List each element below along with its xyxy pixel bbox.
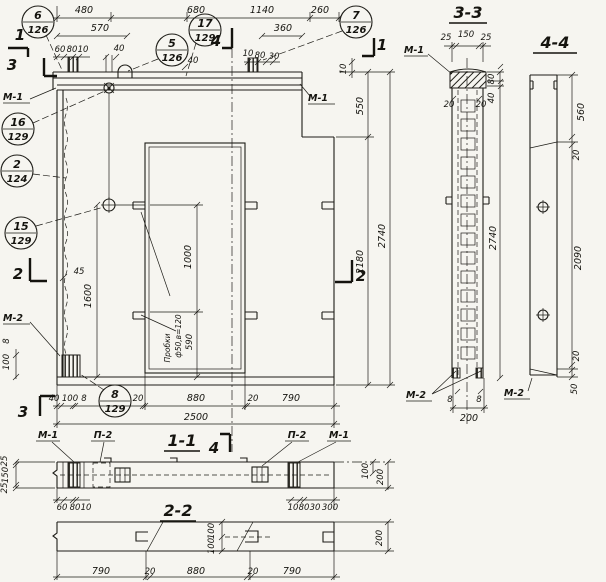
dim-v8: 8 — [2, 338, 12, 344]
cut-3-top: 3 — [7, 56, 17, 74]
cut-3-bottom: 3 — [18, 403, 28, 421]
dim-1600: 1600 — [83, 284, 94, 308]
callout-6-126: 6 126 — [22, 6, 62, 70]
callout-sheet: 129 — [11, 236, 32, 247]
core-voids — [461, 100, 475, 359]
dim-100a-22: 100 — [207, 523, 217, 539]
dim-8b-33: 8 — [476, 395, 482, 405]
plug-note-line2: ф50,в=120 — [174, 314, 183, 358]
dim-80l-11: 80 — [70, 503, 81, 513]
dim-2090-44: 2090 — [573, 246, 584, 270]
dim-20b-22: 20 — [248, 567, 259, 577]
dim-150-11: 150 — [1, 467, 11, 483]
mark-m2-s33: М-2 — [406, 390, 426, 401]
plug-note-line1: Пробки — [163, 333, 172, 362]
dim-2740: 2740 — [377, 224, 388, 248]
callout-num: 6 — [34, 9, 42, 22]
dim-200-22: 200 — [375, 530, 385, 546]
section-title-2-2: 2-2 — [164, 501, 193, 520]
dim-790a-22: 790 — [92, 566, 110, 577]
dim-10: 10 — [78, 45, 89, 55]
callout-num: 8 — [111, 388, 119, 401]
mark-m2-s44: М-2 — [504, 388, 524, 399]
dim-100b-22: 100 — [207, 538, 217, 554]
dim-20b-33: 20 — [476, 100, 487, 110]
dim-590: 590 — [185, 334, 195, 350]
dim-200-11: 200 — [376, 469, 386, 485]
callout-num: 2 — [13, 158, 21, 171]
dim-40-33: 40 — [487, 93, 497, 104]
section-title-3-3: 3-3 — [454, 3, 483, 22]
callout-sheet: 129 — [105, 404, 126, 415]
callout-sheet: 126 — [346, 25, 367, 36]
callout-2-124: 2 124 — [1, 155, 66, 187]
dim-2740-33: 2740 — [488, 226, 499, 250]
dim-1140: 1140 — [250, 5, 274, 16]
front-embeds-and-loops — [62, 30, 334, 452]
dim-25b-11: 25 — [0, 483, 10, 494]
dim-10l-11: 10 — [81, 503, 92, 513]
callout-sheet: 126 — [162, 53, 183, 64]
dim-790: 790 — [282, 393, 300, 404]
dim-570: 570 — [91, 23, 109, 34]
dim-25a-33: 25 — [441, 33, 452, 43]
dim-560-44: 560 — [576, 103, 587, 121]
dim-60: 60 — [55, 45, 66, 55]
section-2-2: 2-2 100 100 200 790 20 880 20 790 — [53, 501, 394, 580]
section-3-3: 3-3 25 150 25 80 40 20 — [404, 3, 504, 424]
dim-300-11: 300 — [322, 503, 338, 513]
cut-2-right: 2 — [356, 267, 366, 285]
section-title-1-1: 1-1 — [168, 431, 197, 450]
dim-790b-22: 790 — [283, 566, 301, 577]
callout-num: 16 — [10, 116, 26, 129]
dim-30-11: 30 — [310, 503, 321, 513]
callout-15-129: 15 129 — [5, 207, 104, 249]
dim-25a-11: 25 — [0, 456, 10, 467]
dim-200-33: 200 — [460, 413, 478, 424]
dim-880: 880 — [187, 393, 205, 404]
mark-p2-s11-left: П-2 — [94, 430, 113, 441]
dim-8a-33: 8 — [447, 395, 453, 405]
dim-80-33: 80 — [487, 74, 497, 85]
panel-working-drawing: 480 680 1140 260 570 360 60 80 10 40 40 … — [0, 0, 606, 582]
mark-m1-topright: М-1 — [308, 93, 328, 104]
dim-10v: 10 — [339, 64, 349, 75]
dim-20b: 20 — [248, 394, 259, 404]
dim-150-33: 150 — [458, 30, 474, 40]
dim-10r-11: 10 — [288, 503, 299, 513]
dim-20a: 20 — [133, 394, 144, 404]
cut-2-left: 2 — [13, 265, 23, 283]
callout-num: 5 — [168, 37, 176, 50]
dim-45: 45 — [74, 267, 85, 277]
dim-880-22: 880 — [187, 566, 205, 577]
mark-p2-s11-right: П-2 — [288, 430, 307, 441]
dim-1000: 1000 — [183, 245, 194, 269]
cut-4-top: 4 — [210, 32, 221, 50]
dim-8b: 8 — [81, 394, 87, 404]
callout-num: 17 — [197, 17, 213, 30]
dim-2500: 2500 — [184, 412, 208, 423]
callout-num: 15 — [13, 220, 29, 233]
blueprint-sheet: 480 680 1140 260 570 360 60 80 10 40 40 … — [0, 0, 606, 582]
callout-sheet: 124 — [7, 174, 28, 185]
dim-360: 360 — [274, 23, 292, 34]
section-title-4-4: 4-4 — [540, 33, 570, 52]
mark-m1-s11-left: М-1 — [38, 430, 58, 441]
section-4-4: 4-4 560 20 2090 20 50 М-2 — [504, 33, 587, 399]
cut-4-bottom: 4 — [208, 439, 219, 457]
cut-1-right: 1 — [377, 36, 387, 54]
dim-50-44: 50 — [570, 384, 580, 395]
dim-100b: 100 — [62, 394, 78, 404]
dim-100-11: 100 — [361, 463, 371, 479]
mark-m1-s33: М-1 — [404, 45, 424, 56]
dim-20a-44: 20 — [572, 150, 582, 161]
callout-num: 7 — [352, 9, 360, 22]
dim-80r-11: 80 — [299, 503, 310, 513]
mark-m1-topleft: М-1 — [3, 92, 23, 103]
dim-v100: 100 — [2, 354, 12, 370]
dim-80: 80 — [67, 45, 78, 55]
dim-550: 550 — [355, 97, 366, 115]
dim-20a-22: 20 — [145, 567, 156, 577]
cut-1-left: 1 — [15, 26, 25, 44]
dim-20b-44: 20 — [572, 351, 582, 362]
mark-m2-left: М-2 — [3, 313, 23, 324]
dim-40a: 40 — [114, 44, 125, 54]
callout-sheet: 126 — [28, 25, 49, 36]
dim-25b-33: 25 — [481, 33, 492, 43]
mark-m1-s11-right: М-1 — [329, 430, 349, 441]
dim-60-11: 60 — [57, 503, 68, 513]
callout-5-126: 5 126 — [128, 34, 188, 71]
callout-8-129: 8 129 — [80, 374, 131, 417]
front-mark-labels: М-1 М-1 М-2 — [3, 84, 335, 356]
dim-260: 260 — [311, 5, 329, 16]
dim-20a-33: 20 — [444, 100, 455, 110]
dim-10r: 10 — [243, 49, 254, 59]
section-1-1: 1-1 М-1 П-2 П-2 М-1 25 150 25 60 80 10 — [0, 430, 395, 513]
callout-sheet: 129 — [8, 132, 29, 143]
dim-480: 480 — [75, 5, 93, 16]
